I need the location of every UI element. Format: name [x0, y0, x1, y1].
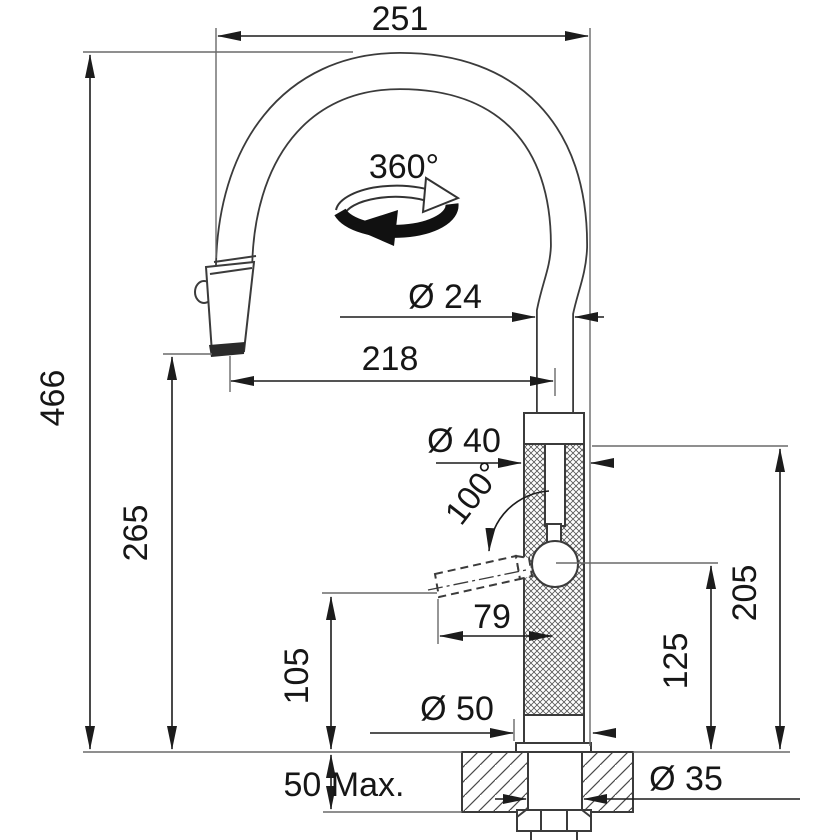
dimension-outlet-height: 265: [117, 357, 172, 749]
overall-height-label: 466: [34, 370, 72, 427]
spout-diameter-label: Ø 24: [408, 278, 482, 316]
mounting-hole-diameter-label: Ø 35: [649, 760, 723, 798]
spray-head: [195, 256, 256, 357]
threaded-shank: [528, 752, 582, 810]
dimension-body-diameter: Ø 40: [427, 422, 614, 463]
dimension-handle-bottom-height: 105: [278, 597, 331, 749]
handle-swing-angle-label: 100°: [437, 455, 508, 532]
dimension-body-top-height: 205: [726, 449, 780, 749]
body-collar: [524, 413, 584, 444]
base-flange: [516, 743, 591, 752]
base-diameter-label: Ø 50: [420, 690, 494, 728]
handle-bottom-height-label: 105: [278, 648, 316, 705]
countertop-hatch-left: [462, 752, 528, 812]
mounting-nut: [517, 810, 591, 831]
faucet-body: [524, 444, 584, 715]
handle-reach-label: 79: [473, 598, 511, 636]
dimension-max-deck-thickness: 50 Max.: [284, 755, 405, 809]
rotation-solid-arrow: [348, 210, 398, 246]
faucet-dimension-diagram: 360° 251 466 265 218: [0, 0, 840, 840]
dimension-spout-reach: 251: [218, 0, 588, 38]
dimension-outlet-reach: 218: [231, 340, 555, 396]
handle-slot: [545, 444, 565, 526]
tailpiece: [531, 831, 577, 840]
dimension-overall-height: 466: [34, 55, 90, 749]
outlet-height-label: 265: [117, 505, 155, 562]
handle-pivot-height-label: 125: [657, 633, 695, 690]
max-deck-thickness-label: 50 Max.: [284, 766, 405, 804]
countertop-hatch-right: [582, 752, 633, 812]
outlet-reach-label: 218: [362, 340, 419, 378]
body-diameter-label: Ø 40: [427, 422, 501, 460]
spray-head-body: [206, 262, 254, 353]
rotation-symbol: 360°: [336, 148, 458, 246]
diagram-canvas: 360° 251 466 265 218: [0, 0, 840, 840]
lever-handle: [428, 556, 532, 597]
body-top-height-label: 205: [726, 565, 764, 622]
base-cylinder: [524, 715, 584, 743]
rotation-ribbon-inner: [344, 197, 430, 216]
spout-reach-label: 251: [372, 0, 429, 38]
handle-pivot: [532, 541, 578, 587]
